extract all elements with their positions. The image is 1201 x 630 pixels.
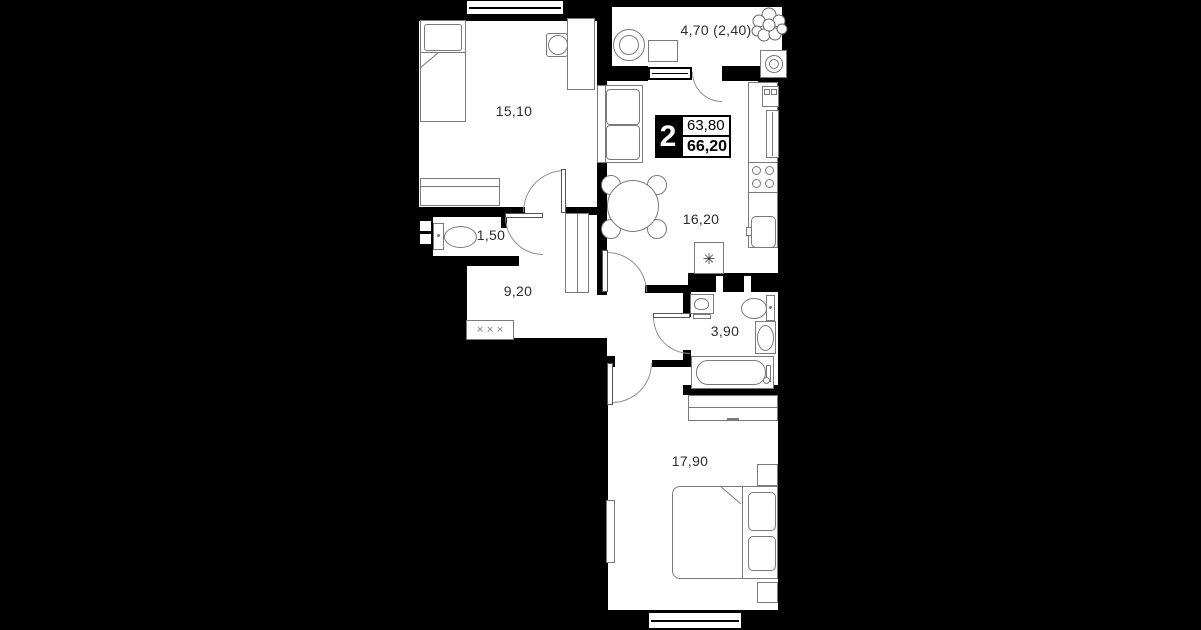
- nightstand: [757, 464, 778, 486]
- room-label-bathroom: 3,90: [711, 323, 739, 339]
- wall-segment: [778, 80, 790, 395]
- area-total-value: 63,80: [681, 115, 731, 137]
- sofa-cushion: [606, 125, 640, 160]
- room-label-hallway: 9,20: [504, 283, 532, 299]
- wall-segment: [645, 285, 688, 293]
- shaft-notch: [420, 234, 431, 244]
- wall-segment: [597, 66, 648, 81]
- door-leaf: [561, 169, 566, 213]
- pillow: [748, 492, 776, 531]
- washing-machine-drum: [769, 59, 779, 69]
- balcony-table: [648, 40, 678, 62]
- burner: [752, 166, 761, 175]
- window: [466, 0, 564, 15]
- flush-button: [769, 306, 772, 309]
- room-label-wc: 1,50: [477, 227, 505, 243]
- wall-segment: [778, 388, 790, 622]
- washbasin-shelf: [693, 314, 711, 319]
- burner: [752, 179, 761, 188]
- burner: [765, 179, 774, 188]
- window-mullion: [651, 620, 739, 622]
- dresser-line: [420, 186, 500, 187]
- wardrobe-line: [577, 213, 578, 293]
- rooms-count-badge: 2: [655, 115, 681, 158]
- nightstand: [757, 582, 778, 603]
- toilet-bowl: [741, 298, 767, 319]
- bath-faucet-knob: [763, 377, 770, 384]
- kitchen-sink: [751, 216, 776, 248]
- desk-chair-seat: [548, 35, 568, 55]
- balcony-chair-seat: [619, 35, 639, 55]
- desk: [567, 18, 595, 90]
- coat-rack-hooks-icon: ✕ ✕ ✕: [476, 325, 504, 336]
- fridge-icon: ✳: [703, 250, 716, 268]
- window: [648, 612, 742, 629]
- flush-button: [437, 234, 440, 237]
- dresser-line: [688, 407, 778, 408]
- toilet-bowl: [444, 226, 477, 248]
- washbasin-bowl: [694, 298, 709, 310]
- apartment-info-badge: 2 63,80 66,20: [655, 115, 731, 158]
- door-leaf: [607, 363, 613, 405]
- wall-segment: [408, 8, 419, 270]
- wall-segment: [722, 66, 763, 81]
- dresser-handle: [727, 418, 739, 420]
- pillow: [424, 24, 462, 51]
- door-leaf: [653, 313, 690, 318]
- blanket-fold: [419, 52, 441, 70]
- exterior-mass: [465, 338, 607, 630]
- pillow: [748, 536, 776, 571]
- vent-shaft-wall: [688, 273, 778, 292]
- room-label-balcony: 4,70 (2,40): [680, 22, 751, 38]
- window-mullion: [652, 73, 688, 74]
- bathtub-basin: [696, 360, 766, 385]
- balcony-window: [648, 67, 692, 80]
- burner: [765, 166, 774, 175]
- wall-segment: [565, 207, 597, 212]
- room-label-bedroom-1: 15,10: [496, 103, 533, 119]
- plant-icon: [748, 4, 790, 46]
- sink-bowl: [757, 325, 774, 351]
- shaft-notch: [420, 221, 431, 231]
- sofa-cushion: [606, 89, 640, 125]
- microwave-knob: [771, 89, 777, 95]
- exterior-mass: [408, 262, 467, 630]
- floor-plan: ✳ ✕ ✕ ✕ 15,10 4,70 (2,40): [0, 0, 1201, 630]
- window-mullion: [469, 7, 561, 9]
- door-leaf: [602, 250, 608, 292]
- tv-console: [606, 500, 615, 563]
- room-label-kitchen: 16,20: [683, 211, 720, 227]
- shaft-notch: [716, 276, 723, 292]
- blanket-fold: [718, 485, 744, 507]
- area-cells: 63,80 66,20: [681, 115, 731, 158]
- area-with-balcony-value: 66,20: [681, 135, 731, 158]
- room-label-bedroom-2: 17,90: [672, 453, 709, 469]
- shaft-notch: [744, 276, 751, 292]
- microwave-knob: [764, 89, 770, 95]
- door-leaf: [505, 213, 543, 218]
- radiator-line: [772, 112, 773, 156]
- faucet: [746, 227, 752, 236]
- dining-table: [607, 180, 659, 232]
- wall-segment: [423, 210, 507, 216]
- wall-segment: [652, 360, 690, 367]
- dresser: [420, 178, 500, 206]
